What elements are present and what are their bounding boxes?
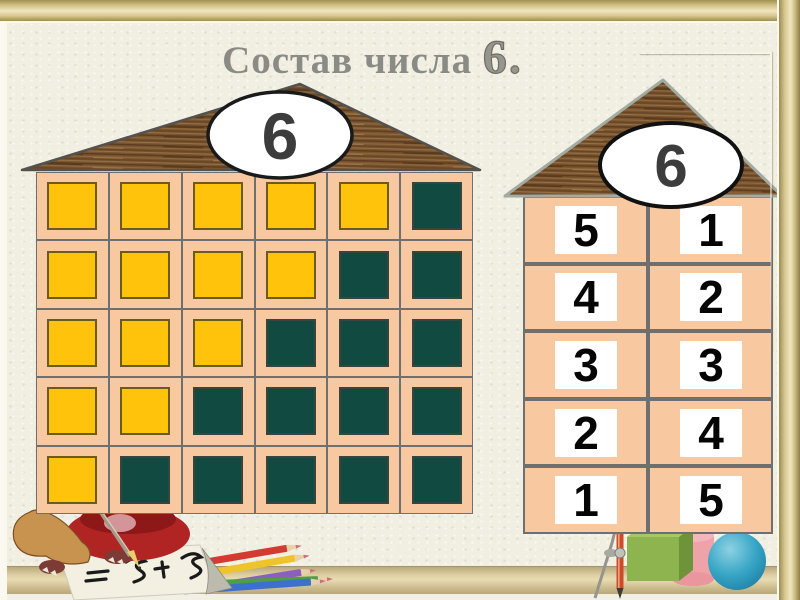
- green-square: [339, 319, 389, 367]
- slide: Состав числа 6. 6 5142332415: [0, 0, 800, 600]
- grid-cell-r3c3: [182, 309, 255, 377]
- teal-sphere-icon: [708, 532, 766, 590]
- green-square: [412, 387, 462, 435]
- number-card: 1: [555, 476, 617, 524]
- number-cell-left-r3: 3: [523, 331, 648, 399]
- grid-cell-r3c1: [36, 309, 109, 377]
- frame-right-bar: [777, 0, 800, 600]
- number-card: 4: [680, 409, 742, 457]
- number-cell-left-r4: 2: [523, 399, 648, 467]
- number-card: 1: [680, 206, 742, 254]
- green-square: [193, 387, 243, 435]
- right-house-roof: 6: [495, 72, 795, 212]
- grid-cell-r2c6: [400, 240, 473, 308]
- yellow-square: [47, 319, 97, 367]
- grid-cell-r3c5: [327, 309, 400, 377]
- left-house-roof: 6: [15, 80, 485, 185]
- green-square: [339, 456, 389, 504]
- right-roof-number: 6: [654, 133, 687, 200]
- yellow-square: [47, 182, 97, 230]
- yellow-square: [193, 319, 243, 367]
- grid-cell-r4c4: [255, 377, 328, 445]
- number-cell-right-r5: 5: [648, 466, 773, 534]
- grid-cell-r4c1: [36, 377, 109, 445]
- number-cell-right-r2: 2: [648, 264, 773, 332]
- green-cube-icon: [627, 526, 693, 581]
- yellow-square: [47, 387, 97, 435]
- grid-cell-r5c1: [36, 446, 109, 514]
- left-roof-number: 6: [262, 99, 299, 173]
- left-house-grid: [36, 172, 473, 514]
- green-square: [412, 319, 462, 367]
- number-card: 2: [555, 409, 617, 457]
- grid-cell-r2c2: [109, 240, 182, 308]
- grid-cell-r3c4: [255, 309, 328, 377]
- green-square: [120, 456, 170, 504]
- frame-left-edge: [0, 21, 7, 600]
- page-title: Состав числа 6.: [0, 30, 745, 85]
- number-cell-left-r5: 1: [523, 466, 648, 534]
- inner-frame-bevel-vertical: [770, 52, 772, 352]
- right-house-grid: 5142332415: [523, 196, 773, 534]
- grid-cell-r2c5: [327, 240, 400, 308]
- number-cell-left-r2: 4: [523, 264, 648, 332]
- yellow-square: [266, 182, 316, 230]
- yellow-square: [120, 319, 170, 367]
- number-card: 3: [680, 341, 742, 389]
- yellow-square: [266, 251, 316, 299]
- grid-cell-r4c3: [182, 377, 255, 445]
- green-square: [266, 387, 316, 435]
- number-card: 4: [555, 273, 617, 321]
- grid-cell-r2c3: [182, 240, 255, 308]
- yellow-square: [120, 387, 170, 435]
- yellow-square: [339, 182, 389, 230]
- yellow-square: [47, 456, 97, 504]
- number-cell-right-r3: 3: [648, 331, 773, 399]
- green-square: [412, 456, 462, 504]
- green-square: [339, 387, 389, 435]
- grid-cell-r2c4: [255, 240, 328, 308]
- grid-cell-r3c6: [400, 309, 473, 377]
- grid-cell-r2c1: [36, 240, 109, 308]
- yellow-square: [193, 182, 243, 230]
- yellow-square: [47, 251, 97, 299]
- green-square: [339, 251, 389, 299]
- yellow-square: [120, 251, 170, 299]
- green-square: [266, 319, 316, 367]
- number-card: 2: [680, 273, 742, 321]
- grid-cell-r4c5: [327, 377, 400, 445]
- frame-top-bar: [0, 0, 800, 23]
- number-card: 3: [555, 341, 617, 389]
- number-card: 5: [555, 206, 617, 254]
- number-cell-right-r4: 4: [648, 399, 773, 467]
- title-number: 6.: [483, 31, 523, 84]
- title-text: Состав числа: [222, 39, 483, 82]
- grid-cell-r5c4: [255, 446, 328, 514]
- grid-cell-r4c2: [109, 377, 182, 445]
- yellow-square: [193, 251, 243, 299]
- green-square: [412, 182, 462, 230]
- grid-cell-r4c6: [400, 377, 473, 445]
- green-square: [193, 456, 243, 504]
- grid-cell-r5c3: [182, 446, 255, 514]
- grid-cell-r5c2: [109, 446, 182, 514]
- green-square: [266, 456, 316, 504]
- grid-cell-r5c6: [400, 446, 473, 514]
- yellow-square: [120, 182, 170, 230]
- green-square: [412, 251, 462, 299]
- grid-cell-r3c2: [109, 309, 182, 377]
- number-card: 5: [680, 476, 742, 524]
- inner-frame-bevel-horizontal: [640, 52, 770, 54]
- grid-cell-r5c5: [327, 446, 400, 514]
